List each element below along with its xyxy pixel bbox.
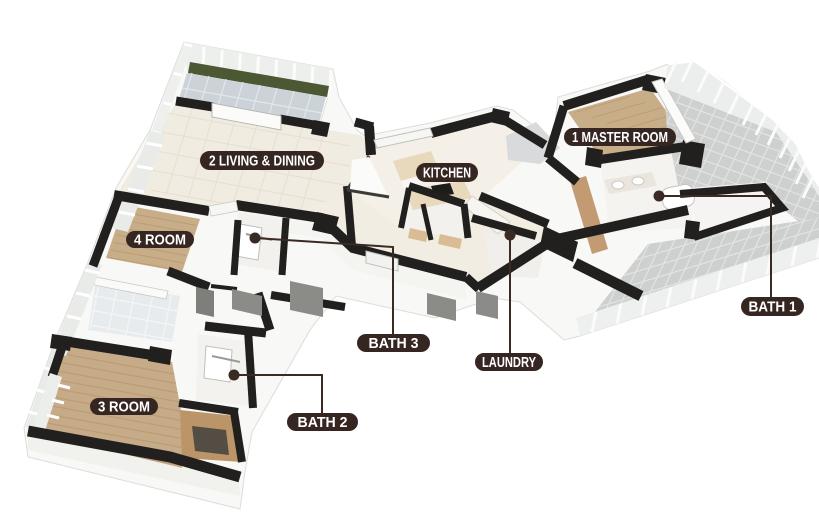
svg-text:3 ROOM: 3 ROOM	[98, 399, 150, 416]
svg-text:KITCHEN: KITCHEN	[423, 165, 471, 182]
svg-text:2 LIVING & DINING: 2 LIVING & DINING	[209, 153, 315, 170]
svg-text:BATH 2: BATH 2	[298, 414, 348, 431]
svg-text:BATH 3: BATH 3	[369, 335, 419, 352]
svg-text:1 MASTER ROOM: 1 MASTER ROOM	[572, 129, 668, 146]
svg-text:4 ROOM: 4 ROOM	[134, 232, 186, 249]
svg-text:LAUNDRY: LAUNDRY	[482, 354, 536, 371]
svg-text:BATH 1: BATH 1	[749, 299, 797, 316]
